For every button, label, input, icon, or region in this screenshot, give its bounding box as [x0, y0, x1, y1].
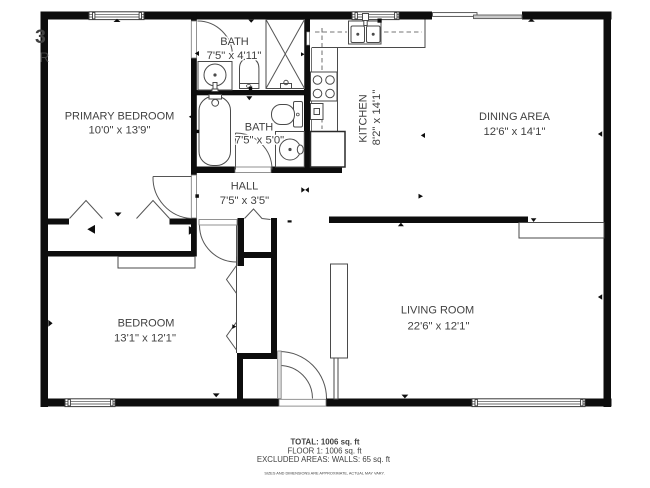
svg-text:22'6" x 12'1": 22'6" x 12'1" [408, 321, 470, 333]
svg-text:LIVING ROOM: LIVING ROOM [401, 305, 474, 317]
svg-text:HALL: HALL [231, 181, 259, 193]
svg-text:10'0" x 13'9": 10'0" x 13'9" [89, 125, 151, 137]
svg-text:8'2" x 14'1": 8'2" x 14'1" [371, 90, 383, 146]
svg-text:7'5" x 4'11": 7'5" x 4'11" [207, 50, 262, 62]
svg-text:12'6" x 14'1": 12'6" x 14'1" [484, 126, 546, 138]
svg-text:3: 3 [35, 26, 46, 48]
svg-text:BATH: BATH [220, 36, 249, 48]
svg-text:BEDROOM: BEDROOM [118, 318, 175, 330]
svg-text:BATH: BATH [245, 122, 274, 134]
svg-text:KITCHEN: KITCHEN [358, 94, 370, 142]
svg-text:PRIMARY BEDROOM: PRIMARY BEDROOM [65, 111, 175, 123]
svg-text:TOTAL: 1006 sq. ft: TOTAL: 1006 sq. ft [291, 438, 360, 447]
svg-text:R: R [40, 50, 50, 65]
svg-text:DINING AREA: DINING AREA [479, 111, 551, 123]
svg-text:EXCLUDED AREAS: WALLS: 65 sq.: EXCLUDED AREAS: WALLS: 65 sq. ft [257, 455, 391, 464]
svg-text:13'1" x 12'1": 13'1" x 12'1" [114, 333, 176, 345]
svg-text:SIZES AND DIMENSIONS ARE APPRO: SIZES AND DIMENSIONS ARE APPROXIMATE, AC… [264, 472, 384, 476]
svg-text:7'5" x 3'5": 7'5" x 3'5" [220, 195, 269, 207]
svg-text:7'5" x 5'0": 7'5" x 5'0" [235, 135, 284, 147]
